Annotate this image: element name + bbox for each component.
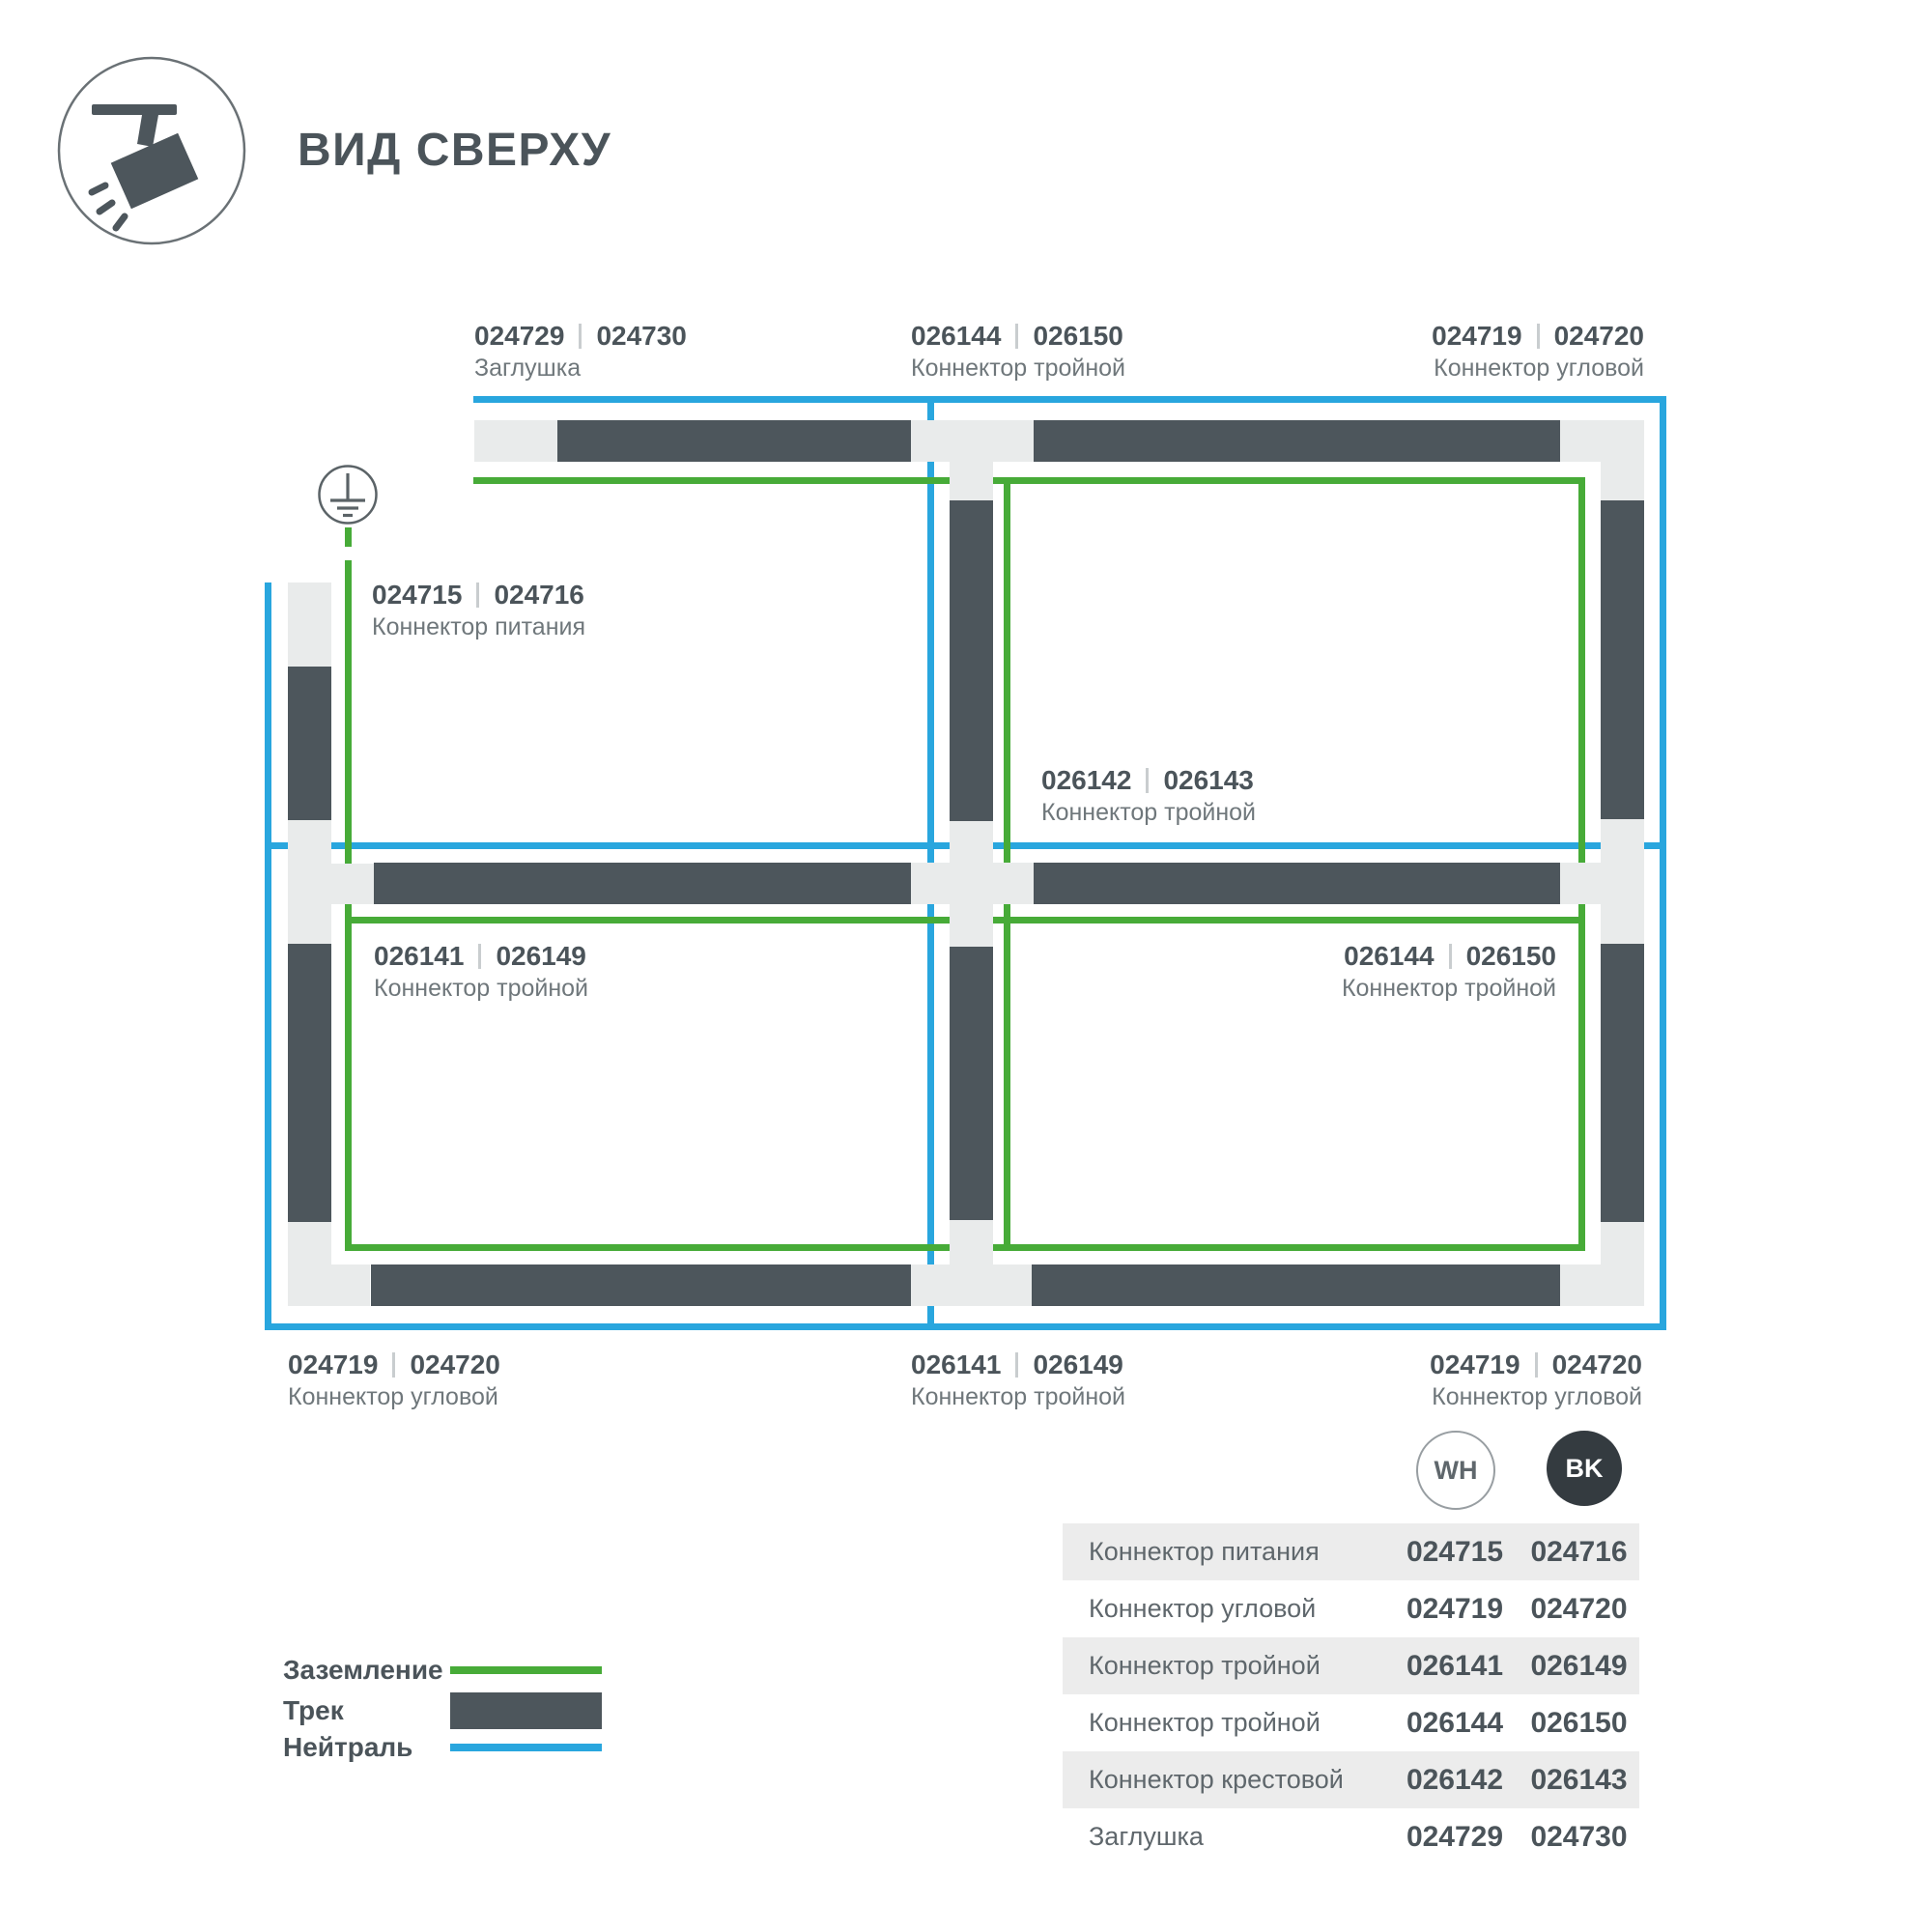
- label-caption: Коннектор тройной: [1041, 798, 1256, 828]
- part-codes: 026142026143: [1041, 763, 1256, 798]
- track-segment: [950, 947, 993, 1220]
- code-wh: 024719: [1430, 1350, 1520, 1379]
- table-row: Коннектор угловой 024719 024720: [1063, 1580, 1639, 1637]
- code-separator: [478, 944, 481, 969]
- part-code-bk: 024720: [1519, 1593, 1639, 1626]
- legend-item-neutral: Нейтраль: [283, 1728, 602, 1767]
- label-triple-connector-left: 026141026149 Коннектор тройной: [374, 939, 588, 1004]
- label-corner-connector-bottom-right: 024719024720 Коннектор угловой: [1430, 1348, 1642, 1412]
- label-endcap-top: 024729024730 Заглушка: [474, 319, 687, 384]
- code-wh: 026141: [911, 1350, 1001, 1379]
- neutral-line: [265, 1323, 1666, 1330]
- part-codes: 026144026150: [911, 319, 1125, 354]
- part-name: Коннектор тройной: [1063, 1651, 1391, 1681]
- code-separator: [1015, 324, 1018, 349]
- ground-symbol-icon: [317, 464, 379, 526]
- track-layout-diagram: [0, 0, 1932, 1932]
- legend-label: Трек: [283, 1695, 344, 1726]
- code-bk: 026149: [1033, 1350, 1122, 1379]
- label-caption: Коннектор тройной: [1342, 974, 1556, 1004]
- label-caption: Коннектор тройной: [911, 354, 1125, 384]
- neutral-line-swatch: [450, 1744, 602, 1751]
- label-power-connector: 024715024716 Коннектор питания: [372, 578, 585, 642]
- track-segment: [1601, 944, 1644, 1222]
- track-connector-block: [911, 1264, 1032, 1306]
- track-segment: [1601, 500, 1644, 819]
- track-segment: [1034, 420, 1560, 462]
- label-caption: Заглушка: [474, 354, 687, 384]
- part-codes: 026141026149: [374, 939, 588, 974]
- label-cross-connector-center: 026142026143 Коннектор тройной: [1041, 763, 1256, 828]
- code-separator: [1015, 1352, 1018, 1378]
- code-bk: 026143: [1163, 765, 1253, 795]
- code-bk: 026149: [496, 941, 585, 971]
- code-separator: [392, 1352, 395, 1378]
- label-corner-connector-top-right: 024719024720 Коннектор угловой: [1432, 319, 1644, 384]
- track-segment: [288, 667, 331, 820]
- code-wh: 026144: [1344, 941, 1434, 971]
- table-row: Заглушка 024729 024730: [1063, 1808, 1639, 1865]
- code-separator: [1535, 1352, 1538, 1378]
- code-wh: 024729: [474, 321, 564, 351]
- code-wh: 024719: [1432, 321, 1521, 351]
- table-row: Коннектор питания 024715 024716: [1063, 1523, 1639, 1580]
- track-connector-block: [1601, 819, 1644, 944]
- legend-label: Заземление: [283, 1655, 443, 1686]
- neutral-line: [1660, 396, 1666, 1330]
- code-bk: 024730: [596, 321, 686, 351]
- track-connector-block: [1560, 1264, 1644, 1306]
- track-bar-swatch: [450, 1692, 602, 1729]
- code-wh: 026142: [1041, 765, 1131, 795]
- part-code-bk: 026143: [1519, 1764, 1639, 1797]
- label-caption: Коннектор угловой: [288, 1382, 500, 1412]
- part-codes: 026144026150: [1342, 939, 1556, 974]
- track-connector-block: [288, 820, 331, 944]
- track-connector-block: [288, 582, 331, 667]
- legend-label: Нейтраль: [283, 1732, 412, 1763]
- code-wh: 024715: [372, 580, 462, 610]
- legend-item-ground: Заземление: [283, 1651, 602, 1690]
- part-code-wh: 024729: [1391, 1821, 1519, 1854]
- track-connector-block: [331, 864, 374, 904]
- part-code-wh: 024719: [1391, 1593, 1519, 1626]
- top-view-diagram-page: ВИД СВЕРХУ 024729024730 Заглушка 0261440…: [0, 0, 1932, 1932]
- part-codes: 024729024730: [474, 319, 687, 354]
- part-codes: 024719024720: [288, 1348, 500, 1382]
- track-segment: [1034, 863, 1560, 904]
- part-code-wh: 024715: [1391, 1536, 1519, 1569]
- track-segment: [1032, 1264, 1560, 1306]
- part-name: Коннектор тройной: [1063, 1708, 1391, 1738]
- code-bk: 026150: [1466, 941, 1556, 971]
- code-wh: 024719: [288, 1350, 378, 1379]
- track-connector-block: [950, 1220, 993, 1264]
- track-segment: [557, 420, 911, 462]
- code-separator: [1449, 944, 1452, 969]
- code-bk: 024716: [494, 580, 583, 610]
- track-connector-block: [288, 1264, 370, 1306]
- track-segment: [288, 944, 331, 1222]
- code-wh: 026141: [374, 941, 464, 971]
- code-separator: [1146, 768, 1149, 793]
- track-connector-block: [1560, 420, 1644, 462]
- part-codes: 026141026149: [911, 1348, 1125, 1382]
- part-name: Коннектор угловой: [1063, 1594, 1391, 1624]
- part-code-wh: 026144: [1391, 1707, 1519, 1740]
- track-segment: [950, 500, 993, 821]
- track-connector-block: [950, 462, 993, 500]
- code-bk: 024720: [1554, 321, 1644, 351]
- badge-label: BK: [1566, 1454, 1604, 1484]
- track-connector-block: [911, 420, 1034, 462]
- label-caption: Коннектор питания: [372, 612, 585, 642]
- table-row: Коннектор тройной 026141 026149: [1063, 1637, 1639, 1694]
- track-segment: [371, 1264, 911, 1306]
- label-caption: Коннектор угловой: [1430, 1382, 1642, 1412]
- code-separator: [476, 582, 479, 608]
- code-separator: [579, 324, 582, 349]
- neutral-line: [473, 396, 1666, 403]
- black-version-badge: BK: [1547, 1431, 1622, 1506]
- track-connector-block: [474, 420, 557, 462]
- code-bk: 024720: [1552, 1350, 1642, 1379]
- ground-line: [345, 580, 352, 1251]
- label-caption: Коннектор тройной: [911, 1382, 1125, 1412]
- part-code-bk: 026149: [1519, 1650, 1639, 1683]
- ground-line-swatch: [450, 1666, 602, 1674]
- table-row: Коннектор тройной 026144 026150: [1063, 1694, 1639, 1751]
- code-bk: 026150: [1033, 321, 1122, 351]
- code-bk: 024720: [410, 1350, 499, 1379]
- part-code-bk: 026150: [1519, 1707, 1639, 1740]
- parts-table: Коннектор питания 024715 024716 Коннекто…: [1063, 1523, 1639, 1865]
- track-connector-block: [911, 863, 1034, 904]
- ground-line: [473, 477, 1585, 484]
- part-code-wh: 026142: [1391, 1764, 1519, 1797]
- part-name: Коннектор питания: [1063, 1537, 1391, 1567]
- part-code-bk: 024716: [1519, 1536, 1639, 1569]
- badge-label: WH: [1435, 1456, 1478, 1486]
- code-separator: [1537, 324, 1540, 349]
- label-triple-connector-top: 026144026150 Коннектор тройной: [911, 319, 1125, 384]
- label-triple-connector-right: 026144026150 Коннектор тройной: [1342, 939, 1556, 1004]
- code-wh: 026144: [911, 321, 1001, 351]
- neutral-line: [265, 582, 271, 1330]
- part-codes: 024719024720: [1432, 319, 1644, 354]
- part-name: Заглушка: [1063, 1822, 1391, 1852]
- legend-item-track: Трек: [283, 1691, 602, 1730]
- ground-line-dashed: [345, 527, 352, 580]
- label-corner-connector-bottom-left: 024719024720 Коннектор угловой: [288, 1348, 500, 1412]
- white-version-badge: WH: [1416, 1431, 1495, 1510]
- label-triple-connector-bottom: 026141026149 Коннектор тройной: [911, 1348, 1125, 1412]
- part-name: Коннектор крестовой: [1063, 1765, 1391, 1795]
- track-connector-block: [1601, 462, 1644, 500]
- track-segment: [374, 863, 911, 904]
- part-codes: 024719024720: [1430, 1348, 1642, 1382]
- part-code-wh: 026141: [1391, 1650, 1519, 1683]
- label-caption: Коннектор тройной: [374, 974, 588, 1004]
- part-codes: 024715024716: [372, 578, 585, 612]
- part-code-bk: 024730: [1519, 1821, 1639, 1854]
- track-connector-block: [1560, 863, 1601, 904]
- label-caption: Коннектор угловой: [1432, 354, 1644, 384]
- table-row: Коннектор крестовой 026142 026143: [1063, 1751, 1639, 1808]
